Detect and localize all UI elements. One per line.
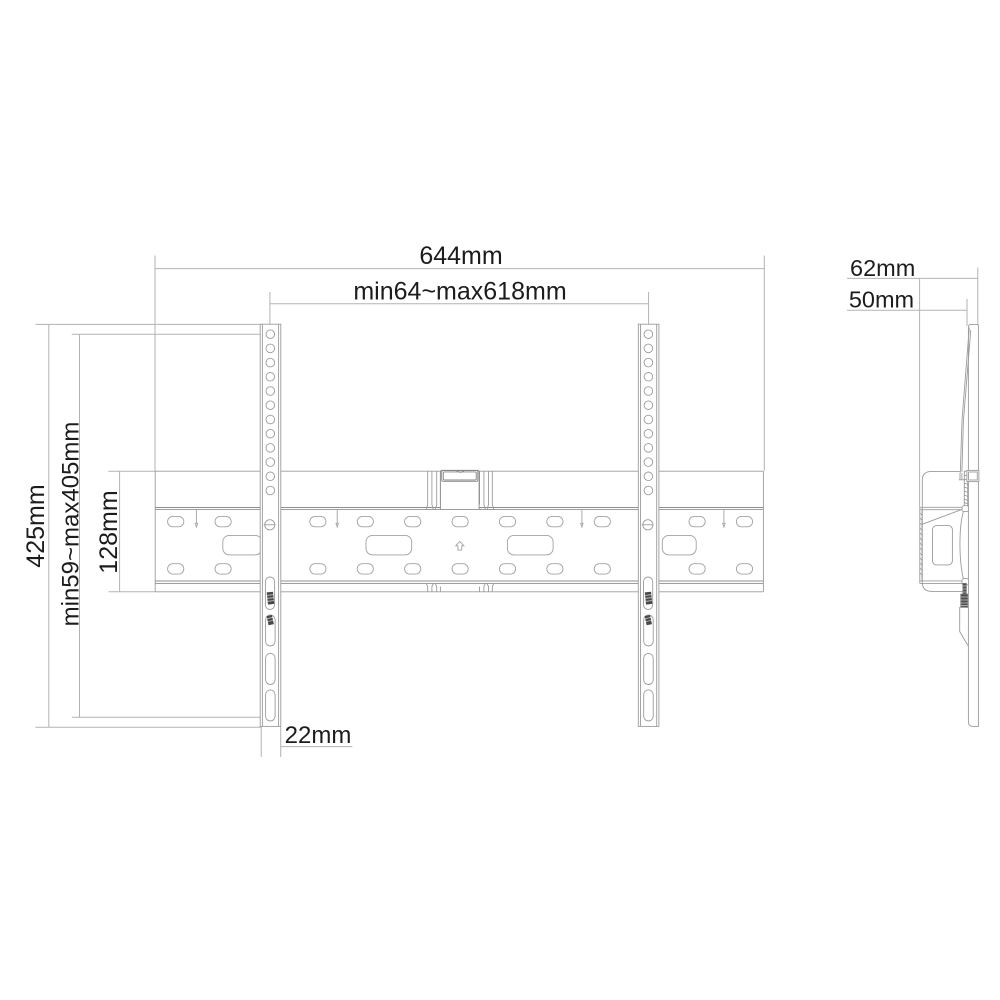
svg-text:50mm: 50mm	[849, 287, 914, 313]
svg-text:425mm: 425mm	[22, 484, 50, 567]
svg-text:62mm: 62mm	[850, 255, 915, 281]
svg-text:128mm: 128mm	[95, 490, 123, 573]
svg-text:min64~max618mm: min64~max618mm	[353, 278, 566, 306]
svg-text:22mm: 22mm	[285, 722, 352, 749]
svg-text:min59~max405mm: min59~max405mm	[58, 422, 85, 627]
svg-text:644mm: 644mm	[419, 242, 502, 270]
